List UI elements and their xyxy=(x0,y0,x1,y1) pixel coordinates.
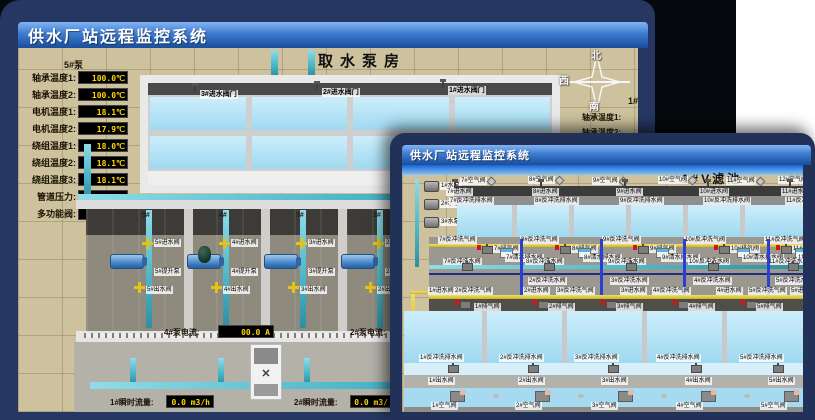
air-valve-icon xyxy=(688,175,698,185)
compass-south: 南 xyxy=(589,98,599,113)
inlet-valve-icon[interactable] xyxy=(373,238,384,249)
drain-valve-label[interactable]: 2#反冲洗排水阀 xyxy=(499,354,544,362)
exhaust-valve-icon[interactable] xyxy=(638,246,649,254)
float-icon xyxy=(493,394,499,398)
air-valve-label[interactable]: 4#空气阀 xyxy=(676,402,703,410)
exhaust-valve-icon[interactable] xyxy=(719,246,730,254)
pool-divider xyxy=(626,205,631,237)
outlet-valve-label[interactable]: 2#出水阀 xyxy=(518,377,545,385)
alarm-dot-icon xyxy=(477,245,481,250)
pipe-gallery: 7#反冲洗气阀 8#反冲洗气阀 9#反冲洗气阀 10#反冲洗气阀 11#反冲洗气… xyxy=(429,237,803,299)
water-cell xyxy=(252,97,348,130)
float-icon xyxy=(661,394,667,398)
pipe xyxy=(415,179,419,267)
intake-valve-label[interactable]: 3#进水阀门 xyxy=(200,90,238,99)
flow-meter-valve-icon: ✕ xyxy=(251,367,281,380)
scene-title: 取水泵房 xyxy=(318,50,406,71)
pump-label[interactable]: 4#提升泵 xyxy=(231,268,258,276)
outlet-valve-label[interactable]: 4#出水阀 xyxy=(223,286,250,294)
exhaust-valve-icon[interactable] xyxy=(482,246,493,254)
air-valve[interactable]: 8#空气阀 xyxy=(528,176,563,184)
drain-valve-label[interactable]: 9#反冲洗排水阀 xyxy=(619,197,664,205)
pump-icon[interactable] xyxy=(424,199,439,210)
air-valve[interactable]: 11#空气阀 xyxy=(726,177,764,185)
exhaust-valve-label[interactable]: 2#排气阀 xyxy=(548,303,575,311)
air-valve-label[interactable]: 2#空气阀 xyxy=(515,402,542,410)
reading-label: 轴承温度1: xyxy=(22,71,76,84)
inlet-valve-label[interactable]: 7#进水阀 xyxy=(446,188,473,196)
reading-label: 管道压力: xyxy=(22,190,76,203)
exhaust-valve-label[interactable]: 5#排气阀 xyxy=(756,303,783,311)
inlet-valve-label[interactable]: 11#进水阀 xyxy=(781,188,803,196)
reading-label: 绕组温度2: xyxy=(22,156,76,169)
pipe-valve-icon[interactable] xyxy=(626,263,637,271)
alarm-dot-icon xyxy=(555,245,559,250)
panel-row: 绕组温度2:18.1℃ xyxy=(22,156,128,169)
intake-valve-label[interactable]: 1#进水阀门 xyxy=(448,86,486,95)
pipe xyxy=(223,210,229,328)
panel-row: 绕组温度3:18.1℃ xyxy=(22,173,128,186)
pipe-valve-label[interactable]: 3#进水阀 xyxy=(620,287,647,295)
alarm-dot-icon xyxy=(714,245,718,250)
pipe xyxy=(308,50,315,76)
pool-divider xyxy=(562,311,567,363)
compass-west: 西 xyxy=(559,72,569,87)
air-valve[interactable]: 7#空气阀 xyxy=(460,177,495,185)
water-cell xyxy=(455,97,551,130)
inlet-valve-label[interactable]: 5#进水阀 xyxy=(154,239,181,247)
current-label: 4#泵电流: xyxy=(164,327,200,338)
outlet-valve-label[interactable]: 4#出水阀 xyxy=(685,377,712,385)
inlet-valve-label[interactable]: 4#进水阀 xyxy=(231,239,258,247)
pool-divider xyxy=(642,311,647,363)
pipe-valve-icon[interactable] xyxy=(788,263,799,271)
pump1-panel-header: 1#泵 xyxy=(628,94,638,107)
outlet-channel-edge xyxy=(404,363,803,375)
inlet-valve-label[interactable]: 3#进水阀 xyxy=(308,239,335,247)
pool-divider xyxy=(569,205,574,237)
air-valve-icon xyxy=(755,176,765,186)
outlet-valve-label[interactable]: 1#出水阀 xyxy=(428,377,455,385)
air-valve-icon xyxy=(486,176,496,186)
valve-icon[interactable] xyxy=(773,365,784,373)
flow-meter[interactable]: ✕ xyxy=(250,344,282,400)
pipe-valve-label[interactable]: 2#进水阀 xyxy=(523,287,550,295)
drain-valve-label[interactable]: 10#反冲洗排水阀 xyxy=(703,197,751,205)
pipe xyxy=(300,210,306,328)
pool-divider xyxy=(722,311,727,363)
pipe xyxy=(271,50,278,76)
bay-number: 4# xyxy=(219,212,227,219)
back-window-title: 供水厂站远程监控系统 xyxy=(28,23,208,47)
panel-row: 轴承温度2:100.0℃ xyxy=(22,88,128,101)
pump-bay: 5# 5#进水阀 5#提升泵 5#出水阀 xyxy=(110,210,190,336)
filter-scene: 1#V滤池 1#水泵 2#水泵 3#水泵 7#空气阀 8#空气阀 9#空气阀 1… xyxy=(402,165,803,412)
exhaust-valve-icon[interactable] xyxy=(781,246,792,254)
flow-value: 0.0 m3/ xyxy=(350,395,392,408)
alarm-dot-icon xyxy=(776,245,780,250)
inlet-valve-label[interactable]: 8#进水阀 xyxy=(532,188,559,196)
reading-value: 100.0℃ xyxy=(78,88,128,101)
intake-valve-icon[interactable] xyxy=(442,82,444,88)
air-valve-label[interactable]: 1#空气阀 xyxy=(431,402,458,410)
inlet-valve-icon[interactable] xyxy=(296,238,307,249)
float-icon xyxy=(578,394,584,398)
pipe xyxy=(377,210,383,328)
tank-icon[interactable] xyxy=(198,246,211,263)
scour-valve-label[interactable]: 8#反冲洗气阀 xyxy=(520,236,559,244)
screenshot-root: { "back": { "titlebar": "供水厂站远程监控系统", "s… xyxy=(0,0,815,420)
backwash-valve-label[interactable]: 4#反冲洗水阀 xyxy=(693,277,732,285)
valve-icon[interactable] xyxy=(448,365,459,373)
drain-valve-label[interactable]: 11#反冲洗排水阀 xyxy=(785,197,803,205)
outlet-valve-label[interactable]: 5#出水阀 xyxy=(146,286,173,294)
float-icon xyxy=(744,394,750,398)
pump-icon[interactable] xyxy=(110,254,144,269)
pool-divider xyxy=(512,205,517,237)
scour-valve-label[interactable]: 7#反冲洗气阀 xyxy=(438,236,477,244)
pipe-valve-label[interactable]: 5#进水阀 xyxy=(790,287,803,295)
pipe xyxy=(146,210,152,328)
reading-label: 轴承温度1: xyxy=(582,112,621,123)
alarm-dot-icon xyxy=(533,300,537,305)
exhaust-valve-label[interactable]: 1#排气阀 xyxy=(474,303,501,311)
water-cell xyxy=(353,97,449,130)
pump-icon[interactable] xyxy=(341,254,375,269)
elbow-pipe-icon[interactable] xyxy=(701,391,716,402)
drain-valve-label[interactable]: 7#反冲洗排水阀 xyxy=(449,197,494,205)
pump-icon[interactable] xyxy=(264,254,298,269)
pump-bay: 4# 4#进水阀 4#提升泵 4#出水阀 xyxy=(187,210,267,336)
alarm-dot-icon xyxy=(455,300,459,305)
air-valve-label: 10#空气阀 xyxy=(658,176,688,184)
exhaust-valve-label[interactable]: 3#排气阀 xyxy=(616,303,643,311)
filter-pools-upper xyxy=(457,205,803,237)
reading-value: 18.1℃ xyxy=(78,105,128,118)
intake-valve-label[interactable]: 2#进水阀门 xyxy=(322,88,360,97)
air-valve-label: 7#空气阀 xyxy=(460,177,487,185)
drain-valve-label[interactable]: 3#反冲洗排水阀 xyxy=(574,354,619,362)
pump-bay: 3# 3#进水阀 3#提升泵 3#出水阀 xyxy=(264,210,344,336)
elbow-pipe-icon[interactable] xyxy=(535,391,550,402)
exhaust-valve-icon[interactable] xyxy=(460,301,471,309)
reading-value: 17.9℃ xyxy=(78,122,128,135)
outlet-valve-label[interactable]: 3#出水阀 xyxy=(300,286,327,294)
pipe-valve-label[interactable]: 2#反冲洗气阀 xyxy=(454,287,493,295)
reading-label: 电机温度2: xyxy=(22,122,76,135)
reading-label: 多功能阀: xyxy=(22,207,76,220)
pipe-valve-icon[interactable] xyxy=(462,263,473,271)
water-cell xyxy=(150,136,246,169)
air-valve-label: 9#空气阀 xyxy=(592,177,619,185)
pipe xyxy=(304,358,310,384)
pool-divider xyxy=(740,205,745,237)
backwash-valve-label[interactable]: 5#反冲洗水阀 xyxy=(775,277,803,285)
outlet-valve-icon[interactable] xyxy=(134,282,145,293)
water-cell xyxy=(252,136,348,169)
scour-valve-label[interactable]: 10#反冲洗气阀 xyxy=(684,236,726,244)
inlet-valve-label[interactable]: 10#进水阀 xyxy=(699,188,729,196)
outlet-valve-icon[interactable] xyxy=(288,282,299,293)
compass: 北 西 南 xyxy=(562,52,632,112)
reading-label: 电机温度1: xyxy=(22,105,76,118)
elbow-pipe-icon[interactable] xyxy=(784,391,799,402)
pool-divider xyxy=(683,205,688,237)
alarm-dot-icon xyxy=(601,300,605,305)
inlet-valve-icon[interactable] xyxy=(142,238,153,249)
valve-icon[interactable] xyxy=(608,365,619,373)
panel-row: 电机温度1:18.1℃ xyxy=(22,105,128,118)
exhaust-valve-icon[interactable] xyxy=(560,246,571,254)
pipe xyxy=(84,144,91,198)
scour-valve-label[interactable]: 9#反冲洗气阀 xyxy=(602,236,641,244)
flow-label: 2#瞬时流量: xyxy=(294,397,338,408)
pump-label[interactable]: 3#提升泵 xyxy=(308,268,335,276)
valve-icon[interactable] xyxy=(691,365,702,373)
pipe-valve-icon[interactable] xyxy=(708,263,719,271)
reading-label: 绕组温度3: xyxy=(22,173,76,186)
water-cell xyxy=(150,97,246,130)
drain-valve-label[interactable]: 5#反冲洗排水阀 xyxy=(739,354,784,362)
back-window-titlebar[interactable]: 供水厂站远程监控系统 xyxy=(18,22,648,48)
backwash-valve-label[interactable]: 2#反冲洗水阀 xyxy=(528,277,567,285)
pump-label[interactable]: 5#提升泵 xyxy=(154,268,181,276)
intake-valve-icon[interactable] xyxy=(194,86,196,92)
bay-number: 3# xyxy=(296,212,304,219)
backwash-valve-label[interactable]: 3#反冲洗水阀 xyxy=(610,277,649,285)
alarm-dot-icon xyxy=(741,300,745,305)
inlet-valve-label[interactable]: 9#进水阀 xyxy=(616,188,643,196)
flow-meter-display xyxy=(254,348,278,364)
inlet-valve-icon[interactable] xyxy=(219,238,230,249)
pipe xyxy=(130,358,136,384)
outlet-valve-icon[interactable] xyxy=(211,282,222,293)
flow-label: 1#瞬时流量: xyxy=(110,397,154,408)
reading-label: 绕组温度1: xyxy=(22,139,76,152)
panel-row: 电机温度2:17.9℃ xyxy=(22,122,128,135)
pipe xyxy=(218,358,224,384)
pipe-valve-label[interactable]: 1#进水阀 xyxy=(428,287,455,295)
valve-icon[interactable] xyxy=(528,365,539,373)
drain-valve-label[interactable]: 1#反冲洗排水阀 xyxy=(419,354,464,362)
pump5-panel-header: 5#泵 xyxy=(64,58,83,71)
drain-valve-label[interactable]: 4#反冲洗排水阀 xyxy=(656,354,701,362)
flow-value: 0.0 m3/h xyxy=(166,395,214,408)
drain-valve-label[interactable]: 8#反冲洗排水阀 xyxy=(534,197,579,205)
outlet-valve-label[interactable]: 3#出水阀 xyxy=(601,377,628,385)
pipe-valve-label[interactable]: 4#反冲洗气阀 xyxy=(652,287,691,295)
pump-icon[interactable] xyxy=(424,217,439,228)
current-value: 00.0 A xyxy=(218,325,274,338)
air-valve-label: 11#空气阀 xyxy=(726,177,756,185)
pipe-valve-label[interactable]: 3#反冲洗气阀 xyxy=(556,287,595,295)
pool-divider xyxy=(482,311,487,363)
alarm-dot-icon xyxy=(633,245,637,250)
riser-pipe xyxy=(600,239,603,297)
pipe-valve-icon[interactable] xyxy=(544,263,555,271)
elbow-pipe-icon[interactable] xyxy=(450,391,465,402)
backwash-water-pipe xyxy=(429,265,803,269)
pipe-valve-label[interactable]: 5#反冲洗气阀 xyxy=(748,287,787,295)
air-valve-label[interactable]: 5#空气阀 xyxy=(760,402,787,410)
intake-valve-icon[interactable] xyxy=(316,84,318,90)
outlet-valve-icon[interactable] xyxy=(365,282,376,293)
exhaust-valve-label[interactable]: 4#排气阀 xyxy=(688,303,715,311)
bay-number: 5# xyxy=(142,212,150,219)
panel-row: 绕组温度1:18.0℃ xyxy=(22,139,128,152)
front-window-title: 供水厂站远程监控系统 xyxy=(410,147,530,163)
air-valve[interactable]: 10#空气阀 xyxy=(658,176,696,184)
bay-number: 2# xyxy=(373,212,381,219)
outlet-valve-label[interactable]: 5#出水阀 xyxy=(768,377,795,385)
reading-label: 轴承温度2: xyxy=(22,88,76,101)
air-valve-icon xyxy=(554,175,564,185)
current-label: 2#泵电流: xyxy=(350,327,386,338)
air-valve-label[interactable]: 3#空气阀 xyxy=(591,402,618,410)
panel-row: 轴承温度1:100.0℃ xyxy=(22,71,128,84)
compass-north: 北 xyxy=(591,48,601,62)
elbow-pipe-icon[interactable] xyxy=(618,391,633,402)
flow-meter-base xyxy=(254,384,278,396)
pump-icon[interactable] xyxy=(424,181,439,192)
pipe-valve-label[interactable]: 4#进水阀 xyxy=(716,287,743,295)
front-window-titlebar[interactable]: 供水厂站远程监控系统 xyxy=(402,145,811,165)
alarm-dot-icon xyxy=(673,300,677,305)
reading-value: 100.0℃ xyxy=(78,71,128,84)
header-pipe xyxy=(429,273,803,275)
